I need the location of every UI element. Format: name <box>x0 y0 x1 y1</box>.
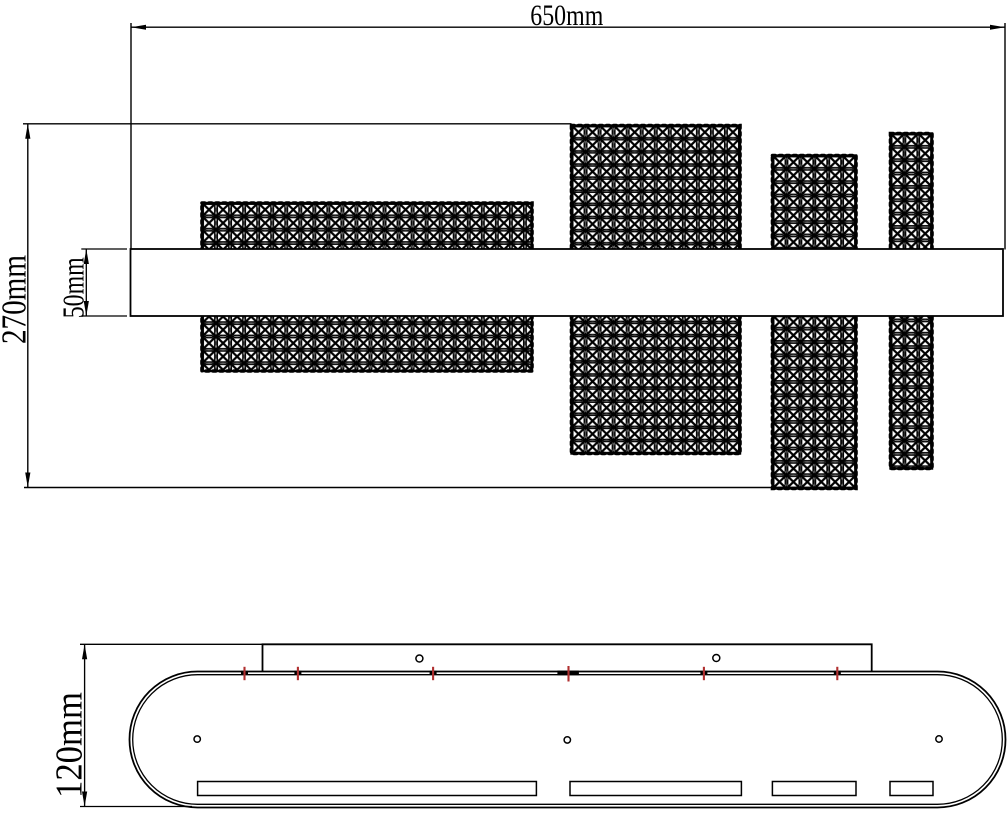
svg-text:270mm: 270mm <box>0 255 34 344</box>
svg-text:650mm: 650mm <box>530 0 603 32</box>
svg-text:120mm: 120mm <box>49 692 91 798</box>
svg-text:50mm: 50mm <box>57 257 91 318</box>
